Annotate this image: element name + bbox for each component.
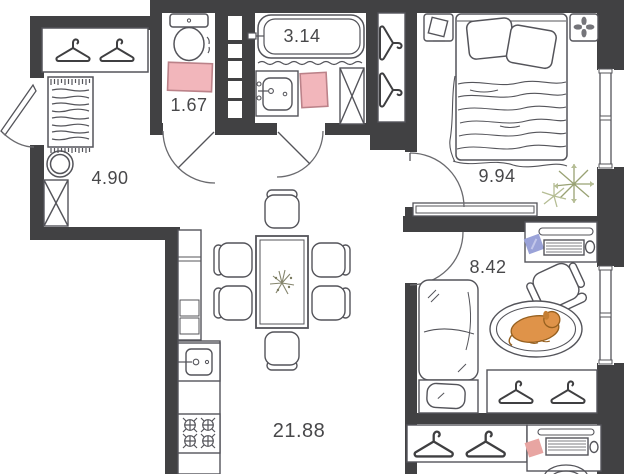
neighbor-closet xyxy=(407,425,527,462)
hall-closet xyxy=(42,28,148,72)
area-label-bathroom: 3.14 xyxy=(270,26,334,47)
neighbor-desk xyxy=(525,425,601,471)
bedroom-window xyxy=(598,69,614,169)
area-label-office: 8.42 xyxy=(456,257,520,278)
bedroom-door xyxy=(410,153,464,207)
dining-table xyxy=(256,236,308,328)
nightstand-left xyxy=(424,14,453,41)
corridor-closet xyxy=(378,13,405,122)
mouse xyxy=(586,241,595,253)
bathroom-door xyxy=(277,131,323,177)
hall-pouf xyxy=(47,151,73,177)
neighbor-keyboard xyxy=(546,438,588,455)
bathroom-shaft-box xyxy=(340,68,364,124)
nightstand-right xyxy=(570,14,598,41)
wc-door xyxy=(163,131,215,183)
stove xyxy=(178,414,220,453)
bedroom-console xyxy=(413,203,537,216)
entrance-door xyxy=(1,85,36,147)
area-label-wc: 1.67 xyxy=(157,95,221,116)
toilet xyxy=(170,14,209,61)
floor-plan: 4.90 1.67 3.14 9.94 8.42 21.88 xyxy=(0,0,624,474)
area-label-hallway: 4.90 xyxy=(78,168,142,189)
doormat-rug xyxy=(48,77,93,153)
double-bed xyxy=(450,14,567,167)
keyboard xyxy=(544,240,584,255)
office-closet xyxy=(487,370,597,413)
area-label-kitchen-living: 21.88 xyxy=(261,420,337,443)
bathroom-sink xyxy=(256,71,298,116)
area-label-bedroom: 9.94 xyxy=(465,166,529,187)
floor-plan-drawing xyxy=(0,0,624,474)
kitchen-counter xyxy=(178,341,220,474)
bedroom-plant xyxy=(542,164,594,207)
office-desk xyxy=(524,222,597,262)
hall-shaft-box xyxy=(44,180,68,226)
fridge-cabinet xyxy=(178,230,201,340)
office-window xyxy=(598,266,614,365)
bathroom-mat xyxy=(300,72,328,107)
bath-water-line xyxy=(258,62,362,65)
plumbing-shaft xyxy=(228,16,242,118)
wc-washing-mat xyxy=(168,62,213,92)
office-armchair-bed xyxy=(419,280,478,413)
kitchen-sink xyxy=(178,343,220,381)
neighbor-mouse xyxy=(590,442,598,453)
